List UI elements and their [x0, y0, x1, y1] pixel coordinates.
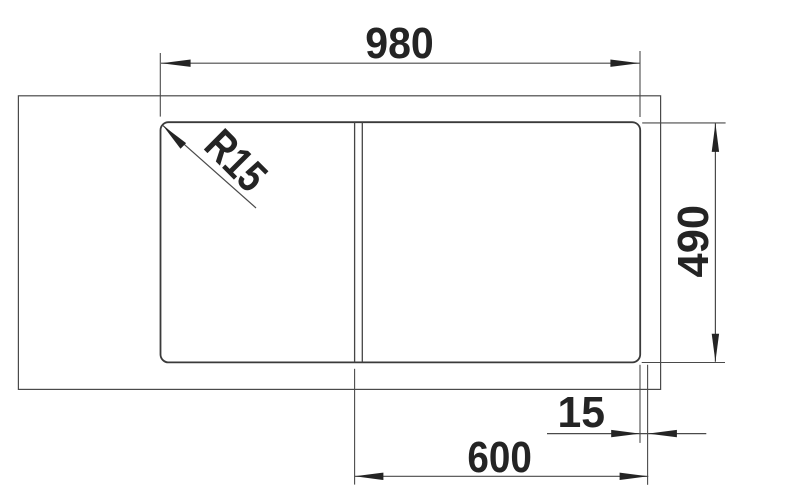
- svg-text:600: 600: [467, 433, 532, 482]
- svg-text:490: 490: [669, 205, 718, 278]
- svg-text:980: 980: [365, 19, 434, 68]
- svg-text:15: 15: [558, 388, 606, 437]
